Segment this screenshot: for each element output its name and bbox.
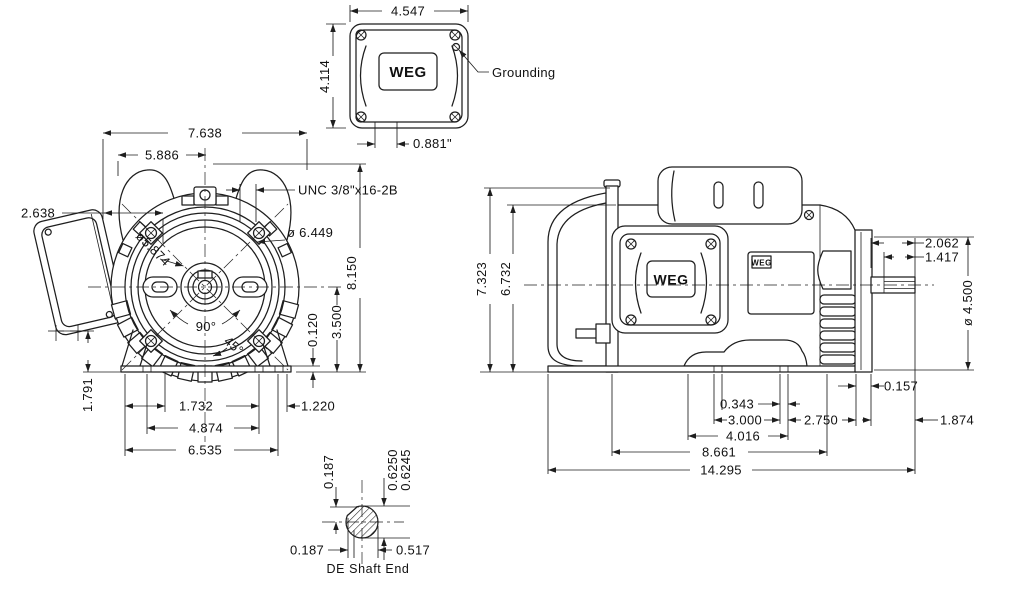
dim-shaft-extension: 1.874 — [940, 413, 974, 428]
dim-foot-slot-width: 0.343 — [720, 397, 754, 412]
dim-foot-bolt-span: 4.874 — [189, 421, 223, 436]
weg-logo-text: WEG — [389, 64, 426, 81]
shaft-detail-label: DE Shaft End — [327, 562, 410, 576]
dim-foot-hole-span: 3.000 — [728, 413, 762, 428]
dim-base-thickness: 0.120 — [305, 313, 320, 347]
dim-overall-length: 14.295 — [700, 463, 742, 478]
fan-opening — [818, 251, 851, 289]
nameplate-logo-text: WEG — [751, 259, 772, 268]
dim-frame-diameter: ø 6.449 — [287, 225, 333, 240]
dim-box-bottom-height: 1.791 — [80, 378, 95, 412]
motor-side-view: WEG WEG 7.323 6.732 2.062 1.417 — [474, 167, 975, 478]
dim-box-offset: 2.638 — [21, 206, 55, 221]
drawing-canvas: WEG Grounding 0.881" 4.547 4.114 — [0, 0, 1010, 590]
dim-overall-height: 8.150 — [344, 256, 359, 290]
dim-foot-pad-length: 4.016 — [726, 429, 760, 444]
terminal-box-side: WEG — [612, 226, 728, 333]
dim-foot-slot-offset: 1.732 — [179, 399, 213, 414]
dim-center-height: 3.500 — [329, 305, 344, 339]
dim-base-length: 8.661 — [702, 445, 736, 460]
motor-front-view: 7.638 5.886 2.638 UNC 3/8"x16-2B ø 6.449… — [21, 126, 398, 458]
dim-flat-depth: 0.187 — [321, 455, 336, 489]
dim-box-height: 4.114 — [317, 60, 332, 93]
dim-hole-to-face: 2.750 — [804, 413, 838, 428]
dim-foot-edge-offset: 1.220 — [301, 399, 335, 414]
c-face-flange — [855, 230, 872, 372]
dim-face-diameter: ø 4.500 — [960, 280, 975, 326]
dim-side-body-height: 6.732 — [498, 262, 513, 296]
terminal-box-top-view: WEG Grounding 0.881" 4.547 4.114 — [317, 4, 555, 152]
dim-flat-offset: 0.187 — [290, 543, 324, 558]
motor-dimension-drawing: WEG Grounding 0.881" 4.547 4.114 — [0, 0, 1010, 590]
dim-base-width: 6.535 — [188, 443, 222, 458]
dim-key-length: 1.417 — [925, 250, 959, 265]
mounting-base — [121, 366, 291, 372]
nameplate: WEG — [748, 252, 814, 314]
grounding-label: Grounding — [492, 65, 555, 80]
dim-across-flat: 0.517 — [396, 543, 430, 558]
dim-box-width: 4.547 — [391, 4, 425, 19]
base-rail — [548, 366, 856, 372]
shaft-end-detail: 0.187 0.6250 0.6245 0.187 0.517 DE Shaft… — [290, 449, 430, 576]
drain-plug — [576, 329, 598, 338]
dim-angle-90: 90° — [196, 319, 217, 334]
dim-shaft-dia-min: 0.6245 — [398, 449, 413, 491]
top-canopy — [658, 167, 802, 224]
dim-lug-width: 5.886 — [145, 148, 179, 163]
dim-flange-gap: 0.157 — [884, 379, 918, 394]
dim-side-overall-height: 7.323 — [474, 262, 489, 296]
dim-thread-spec: UNC 3/8"x16-2B — [298, 183, 398, 198]
drive-end-fins — [820, 295, 856, 364]
dim-knockout: 0.881" — [413, 136, 452, 151]
dim-overall-width: 7.638 — [188, 126, 222, 141]
dim-shaft-length: 2.062 — [925, 236, 959, 251]
foot-pad — [684, 340, 807, 366]
